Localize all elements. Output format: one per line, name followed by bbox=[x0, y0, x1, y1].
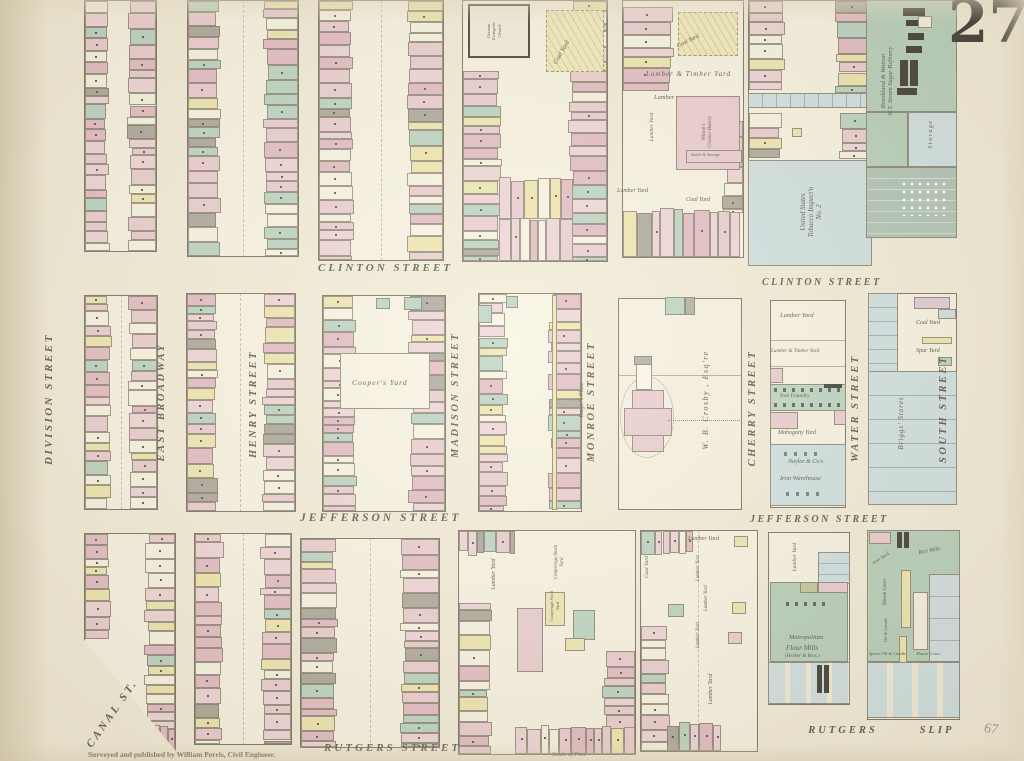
lot-mark bbox=[96, 44, 98, 46]
mahogany-yard-label: Mahogany Yard bbox=[778, 430, 816, 436]
lot bbox=[410, 22, 443, 33]
lot-mark bbox=[207, 538, 209, 540]
lot bbox=[195, 587, 219, 602]
lot-mark bbox=[96, 91, 98, 93]
lot bbox=[623, 35, 671, 47]
lot bbox=[131, 203, 156, 217]
lot-mark bbox=[121, 737, 123, 739]
street-label-rutgers-slip: SLIP bbox=[914, 725, 960, 736]
lot-mark bbox=[423, 16, 425, 18]
lot bbox=[115, 727, 129, 750]
lot-mark bbox=[144, 465, 146, 467]
lot bbox=[146, 601, 175, 610]
lot-depth-line bbox=[381, 0, 382, 261]
lot bbox=[409, 33, 443, 42]
lot-mark bbox=[276, 721, 278, 723]
lot bbox=[463, 194, 501, 204]
lot-mark bbox=[337, 428, 339, 430]
lot bbox=[412, 320, 445, 334]
lot bbox=[323, 417, 355, 425]
lot-mark bbox=[96, 378, 98, 380]
stores-lot bbox=[938, 309, 956, 319]
lot-mark bbox=[142, 161, 144, 163]
lot bbox=[128, 240, 156, 251]
lot-mark bbox=[334, 103, 336, 105]
lot bbox=[408, 1, 443, 11]
hecker-label: (Hecker & Bros.) bbox=[785, 654, 820, 659]
lot bbox=[641, 626, 667, 640]
lot-mark bbox=[490, 466, 492, 468]
lot bbox=[85, 617, 110, 630]
warehouse-windows bbox=[784, 452, 824, 456]
lot bbox=[479, 435, 505, 445]
lot bbox=[749, 35, 782, 43]
city-block bbox=[186, 293, 296, 512]
lot bbox=[187, 434, 216, 448]
lot-mark bbox=[672, 736, 674, 738]
lot-mark bbox=[95, 134, 97, 136]
lot-mark bbox=[515, 236, 517, 238]
lot bbox=[130, 487, 157, 497]
lot-mark bbox=[587, 250, 589, 252]
coal-yard-label: Coal Yard bbox=[686, 197, 710, 203]
lot-mark bbox=[479, 187, 481, 189]
lot-mark bbox=[278, 487, 280, 489]
lot-mark bbox=[764, 50, 766, 52]
lot-mark bbox=[95, 570, 97, 572]
stores-lot bbox=[818, 552, 850, 584]
lot bbox=[683, 213, 694, 257]
lot bbox=[323, 332, 354, 347]
lot-mark bbox=[142, 36, 144, 38]
refinery-building bbox=[903, 8, 925, 16]
lot-mark bbox=[706, 735, 708, 737]
lot bbox=[463, 106, 501, 118]
lot bbox=[479, 496, 507, 506]
lot bbox=[553, 431, 581, 438]
lot bbox=[323, 463, 355, 476]
lot bbox=[130, 472, 157, 488]
lot bbox=[319, 1, 353, 10]
lot bbox=[410, 146, 443, 161]
lot bbox=[323, 494, 356, 505]
lot bbox=[128, 390, 157, 405]
street-label-south: SOUTH STREET bbox=[938, 350, 951, 468]
lot bbox=[641, 648, 666, 659]
lot-mark bbox=[618, 710, 620, 712]
lot-mark bbox=[420, 654, 422, 656]
city-block-canal bbox=[84, 533, 176, 751]
lot bbox=[655, 531, 663, 555]
lot bbox=[541, 725, 549, 754]
frame-strip bbox=[552, 295, 557, 510]
lot-mark bbox=[480, 209, 482, 211]
lot bbox=[148, 666, 175, 675]
lot bbox=[479, 462, 503, 473]
foundry-windows bbox=[774, 403, 842, 407]
lot-mark bbox=[95, 80, 97, 82]
lot bbox=[188, 242, 220, 256]
lot bbox=[265, 534, 291, 547]
lot bbox=[85, 534, 108, 545]
lot bbox=[266, 181, 298, 193]
lot-mark bbox=[206, 680, 208, 682]
lot-mark bbox=[654, 709, 656, 711]
lot bbox=[459, 690, 487, 698]
lot bbox=[319, 139, 353, 148]
lumber-yard-label: Lumber Yard bbox=[490, 552, 499, 596]
lot bbox=[670, 531, 679, 553]
lumber-yard-label: Lumber Yard bbox=[688, 536, 719, 542]
lot bbox=[407, 173, 443, 186]
lot bbox=[641, 730, 668, 742]
lot-mark bbox=[425, 496, 427, 498]
lot-mark bbox=[200, 428, 202, 430]
lot bbox=[266, 128, 298, 143]
lot bbox=[260, 588, 291, 595]
lot bbox=[569, 199, 607, 214]
lot bbox=[85, 304, 108, 311]
lot-mark bbox=[335, 143, 337, 145]
stores-row bbox=[868, 293, 898, 373]
crosby-label: W. B. Crosby , Esq're bbox=[700, 345, 712, 455]
lot bbox=[187, 388, 215, 400]
lot bbox=[264, 609, 291, 619]
lot-mark bbox=[653, 632, 655, 634]
foundry-windows bbox=[774, 388, 842, 392]
lot bbox=[187, 294, 216, 306]
lot-mark bbox=[418, 627, 420, 629]
lot bbox=[263, 502, 295, 511]
lot-mark bbox=[617, 691, 619, 693]
lot-mark bbox=[140, 131, 142, 133]
lot bbox=[463, 94, 497, 105]
lot bbox=[499, 219, 511, 261]
lot-mark bbox=[142, 420, 144, 422]
cooperage-label: Cooperage StockYard bbox=[548, 582, 561, 630]
lot bbox=[749, 138, 782, 149]
lot bbox=[132, 360, 157, 371]
lot bbox=[463, 159, 502, 167]
lot-mark bbox=[338, 325, 340, 327]
lot bbox=[188, 109, 221, 119]
lot bbox=[400, 623, 439, 631]
lot-mark bbox=[619, 658, 621, 660]
lot bbox=[409, 186, 443, 196]
lot-mark bbox=[544, 737, 546, 739]
lot bbox=[569, 224, 607, 235]
lot bbox=[468, 531, 476, 556]
lot-mark bbox=[855, 135, 857, 137]
refinery-court bbox=[918, 16, 932, 28]
lot bbox=[188, 83, 217, 97]
lot bbox=[262, 632, 291, 644]
lot bbox=[568, 120, 607, 133]
lot-mark bbox=[96, 562, 98, 564]
lot bbox=[402, 692, 439, 704]
lot bbox=[560, 219, 573, 261]
lot bbox=[319, 161, 350, 172]
lot bbox=[187, 321, 217, 330]
lot-mark bbox=[142, 446, 144, 448]
lot-mark bbox=[200, 417, 202, 419]
lot bbox=[130, 29, 156, 45]
lot bbox=[85, 311, 109, 326]
lot bbox=[187, 314, 214, 321]
lot-mark bbox=[335, 234, 337, 236]
lot bbox=[699, 723, 713, 751]
lot-mark bbox=[95, 539, 97, 541]
lot bbox=[132, 334, 157, 348]
lot bbox=[641, 704, 669, 714]
lot-mark bbox=[274, 552, 276, 554]
lot bbox=[188, 147, 218, 155]
lot bbox=[265, 619, 291, 632]
lot bbox=[570, 185, 607, 199]
lot bbox=[85, 164, 109, 175]
lot-mark bbox=[95, 365, 97, 367]
special-lot bbox=[376, 298, 390, 309]
lot bbox=[130, 155, 156, 169]
lot-mark bbox=[517, 197, 519, 199]
lot-depth-line bbox=[243, 533, 244, 745]
street-label-east-broadway: EAST BROADWAY bbox=[156, 342, 169, 462]
lot-mark bbox=[764, 39, 766, 41]
lot bbox=[264, 595, 291, 609]
lot bbox=[85, 243, 110, 251]
lot bbox=[463, 231, 498, 241]
lot bbox=[129, 726, 143, 750]
lot bbox=[319, 256, 352, 260]
lot bbox=[85, 405, 111, 417]
lot-mark bbox=[764, 142, 766, 144]
lot-mark bbox=[333, 166, 335, 168]
lot bbox=[319, 240, 351, 256]
lot bbox=[479, 405, 503, 416]
lot bbox=[160, 726, 168, 750]
frame-lot bbox=[732, 602, 746, 614]
lot-mark bbox=[279, 232, 281, 234]
lot bbox=[195, 718, 220, 729]
lot bbox=[188, 171, 218, 183]
barrel-storage-dots bbox=[900, 180, 946, 216]
lot-mark bbox=[765, 28, 767, 30]
lot-mark bbox=[619, 721, 621, 723]
lot bbox=[319, 149, 351, 161]
brick-lot bbox=[728, 632, 742, 644]
lot-mark bbox=[424, 88, 426, 90]
lot bbox=[463, 117, 501, 125]
lot-mark bbox=[480, 162, 482, 164]
lot bbox=[261, 659, 291, 670]
lot-mark bbox=[199, 470, 201, 472]
lot bbox=[301, 653, 334, 661]
lot-mark bbox=[586, 229, 588, 231]
brick-lot bbox=[770, 368, 783, 383]
mansion-wing bbox=[634, 356, 652, 365]
lot bbox=[479, 356, 503, 371]
lot bbox=[151, 725, 160, 750]
lot bbox=[319, 57, 353, 69]
mill-windows bbox=[786, 602, 826, 606]
lot bbox=[459, 711, 488, 722]
tobacco-warehouse-label: United StatesTobacco Inspect'nNo. 2 bbox=[794, 166, 828, 258]
lot-mark bbox=[701, 230, 703, 232]
special-lot bbox=[506, 296, 518, 308]
lot-mark bbox=[337, 437, 339, 439]
lot bbox=[195, 662, 221, 674]
surveyor-credit: Surveyed and published by William Perris… bbox=[88, 750, 275, 759]
lot-mark bbox=[418, 546, 420, 548]
lot bbox=[479, 394, 508, 405]
lot bbox=[188, 69, 217, 84]
lot bbox=[408, 42, 443, 56]
lot bbox=[637, 213, 652, 257]
lot bbox=[266, 318, 295, 328]
lot-mark bbox=[337, 394, 339, 396]
lot bbox=[479, 486, 506, 495]
yard-line bbox=[770, 340, 846, 341]
lot bbox=[749, 82, 782, 91]
lot-mark bbox=[472, 693, 474, 695]
lot-mark bbox=[418, 687, 420, 689]
lot-mark bbox=[95, 56, 97, 58]
lot bbox=[85, 347, 110, 360]
lot bbox=[323, 320, 356, 332]
lot bbox=[407, 236, 443, 252]
lot bbox=[195, 616, 222, 625]
lot bbox=[188, 227, 218, 242]
lot bbox=[263, 119, 298, 128]
refinery-building bbox=[897, 88, 917, 95]
lot-mark bbox=[479, 258, 481, 260]
lot-mark bbox=[425, 152, 427, 154]
lot bbox=[85, 601, 111, 617]
lot bbox=[301, 731, 334, 741]
lot bbox=[265, 575, 291, 588]
lot-mark bbox=[97, 480, 99, 482]
lot-mark bbox=[420, 636, 422, 638]
lot-mark bbox=[418, 737, 420, 739]
lot-mark bbox=[316, 632, 318, 634]
lot-mark bbox=[202, 162, 204, 164]
lot-mark bbox=[492, 342, 494, 344]
lot bbox=[527, 729, 540, 754]
lot-mark bbox=[206, 565, 208, 567]
lot bbox=[195, 534, 221, 542]
lot bbox=[85, 559, 109, 567]
lot bbox=[408, 490, 445, 503]
brick-lot bbox=[834, 410, 846, 425]
lot bbox=[85, 27, 107, 38]
lot-mark bbox=[278, 299, 280, 301]
lot bbox=[459, 746, 491, 754]
lot-mark bbox=[492, 298, 494, 300]
lot bbox=[262, 397, 295, 405]
lot bbox=[129, 59, 156, 70]
lot bbox=[267, 364, 295, 379]
lot bbox=[128, 217, 156, 231]
lot bbox=[85, 211, 107, 222]
coopers-yard-label: Cooper's Yard bbox=[352, 378, 408, 387]
lot bbox=[323, 308, 353, 319]
lot bbox=[749, 13, 783, 22]
lot bbox=[319, 98, 352, 109]
lot-mark bbox=[280, 164, 282, 166]
lot bbox=[188, 156, 220, 172]
lot bbox=[319, 186, 353, 201]
lot bbox=[479, 326, 505, 337]
lot-mark bbox=[565, 300, 567, 302]
foundry-roof bbox=[824, 384, 842, 388]
lot bbox=[319, 45, 350, 57]
lot-mark bbox=[531, 197, 533, 199]
lot bbox=[607, 667, 635, 678]
lot-mark bbox=[160, 708, 162, 710]
lot bbox=[195, 637, 222, 648]
warehouse-windows bbox=[786, 492, 822, 496]
lot bbox=[641, 742, 669, 751]
lot bbox=[129, 45, 156, 59]
lot bbox=[85, 104, 106, 119]
lot bbox=[188, 198, 221, 213]
lot-mark bbox=[334, 178, 336, 180]
storage-label: Storage bbox=[926, 112, 936, 156]
lot-mark bbox=[276, 709, 278, 711]
mason-court-label: Mason Court bbox=[916, 651, 940, 656]
stable-building bbox=[685, 297, 695, 315]
lot bbox=[195, 542, 224, 558]
lot-mark bbox=[851, 89, 853, 91]
street-label-rutgers-slip: RUTGERS bbox=[808, 725, 878, 736]
lot-mark bbox=[566, 434, 568, 436]
lot bbox=[262, 644, 291, 659]
lot bbox=[479, 422, 507, 435]
lot bbox=[301, 716, 335, 731]
lot-mark bbox=[490, 508, 492, 510]
lot bbox=[550, 178, 561, 219]
lot-mark bbox=[95, 299, 97, 301]
lot bbox=[749, 59, 785, 70]
lot-mark bbox=[565, 368, 567, 370]
lot bbox=[319, 230, 354, 240]
lot-mark bbox=[653, 735, 655, 737]
lot-mark bbox=[276, 674, 278, 676]
lot bbox=[85, 190, 107, 198]
lot bbox=[132, 148, 156, 155]
lot bbox=[85, 360, 108, 372]
lot bbox=[195, 558, 220, 573]
lot-mark bbox=[161, 538, 163, 540]
lot bbox=[496, 531, 511, 553]
lot bbox=[479, 379, 503, 394]
lot bbox=[546, 216, 560, 261]
metropolitan-label: Metropolitan bbox=[789, 634, 823, 641]
lot bbox=[128, 296, 157, 310]
lot bbox=[268, 65, 298, 80]
lot-mark bbox=[144, 409, 146, 411]
lot bbox=[407, 11, 443, 22]
lumber-yard-label: Lumber Yard bbox=[707, 666, 716, 712]
lumber-yard-label: Lumber Yard bbox=[648, 104, 657, 150]
lumber-yard-label: Lumber Yard bbox=[695, 618, 703, 652]
lot bbox=[149, 534, 175, 543]
lot bbox=[267, 105, 298, 119]
lot bbox=[301, 593, 337, 608]
lot-mark bbox=[578, 738, 580, 740]
refinery-building bbox=[910, 60, 918, 86]
lot-mark bbox=[278, 409, 280, 411]
